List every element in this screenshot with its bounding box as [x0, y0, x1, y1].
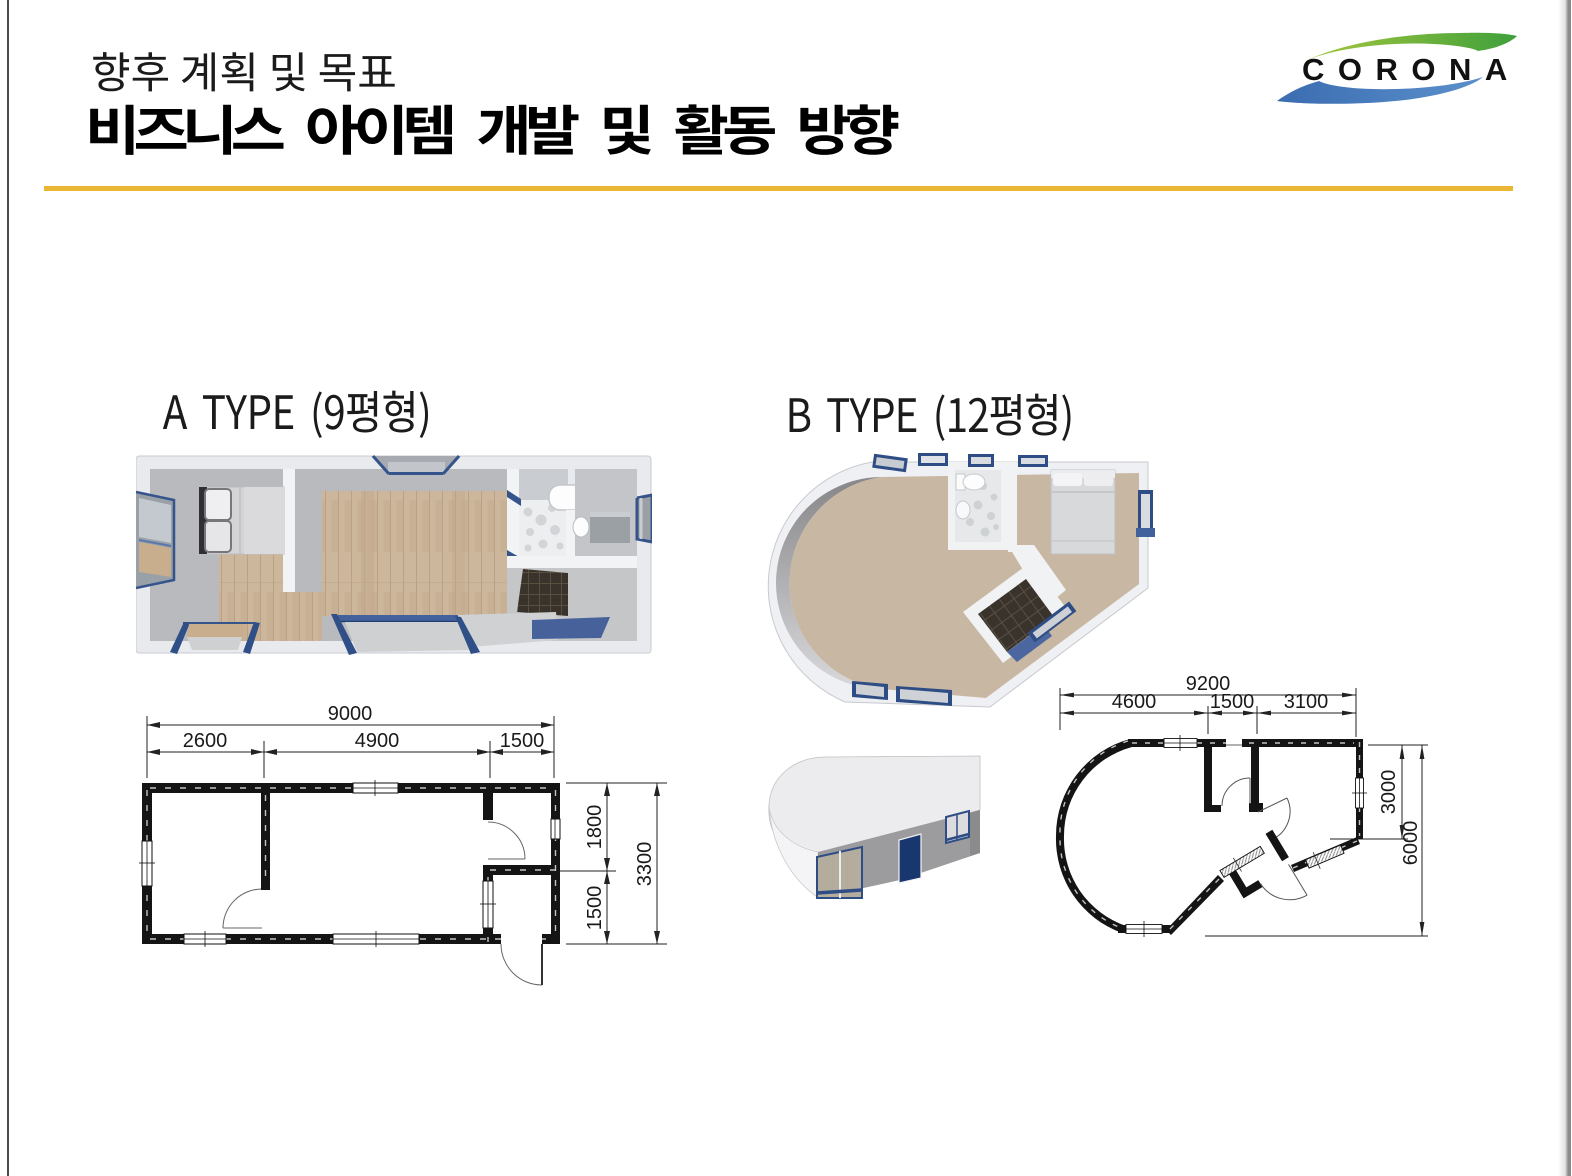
svg-text:4600: 4600 — [1112, 691, 1157, 713]
svg-text:3100: 3100 — [1284, 691, 1329, 713]
svg-text:2600: 2600 — [183, 730, 228, 752]
svg-text:1500: 1500 — [584, 886, 606, 931]
svg-text:4900: 4900 — [355, 730, 400, 752]
svg-text:1500: 1500 — [1210, 691, 1255, 713]
svg-text:1800: 1800 — [584, 805, 606, 850]
svg-text:CORONA: CORONA — [1302, 52, 1521, 87]
svg-text:9000: 9000 — [328, 703, 373, 725]
svg-text:3000: 3000 — [1378, 770, 1400, 815]
svg-text:1500: 1500 — [500, 730, 545, 752]
svg-text:6000: 6000 — [1400, 821, 1422, 866]
svg-text:3300: 3300 — [634, 842, 656, 887]
